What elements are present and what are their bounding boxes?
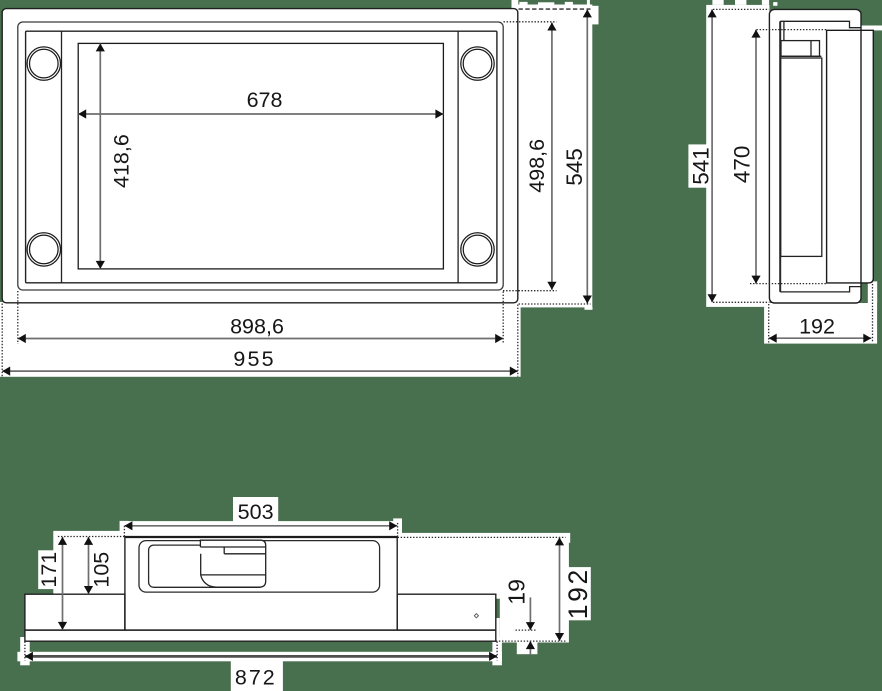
svg-text:171: 171 (37, 552, 61, 588)
svg-text:898,6: 898,6 (230, 315, 284, 339)
svg-text:541: 541 (688, 147, 713, 185)
svg-text:872: 872 (235, 666, 277, 690)
svg-text:470: 470 (730, 146, 755, 184)
svg-text:678: 678 (247, 88, 283, 112)
svg-text:498,6: 498,6 (525, 139, 549, 193)
svg-text:19: 19 (504, 579, 530, 605)
svg-text:418,6: 418,6 (110, 134, 134, 188)
svg-text:503: 503 (238, 500, 274, 524)
svg-text:192: 192 (563, 567, 593, 619)
svg-text:105: 105 (90, 552, 114, 588)
svg-text:955: 955 (233, 347, 275, 371)
svg-text:545: 545 (562, 148, 587, 186)
svg-text:192: 192 (799, 314, 835, 338)
